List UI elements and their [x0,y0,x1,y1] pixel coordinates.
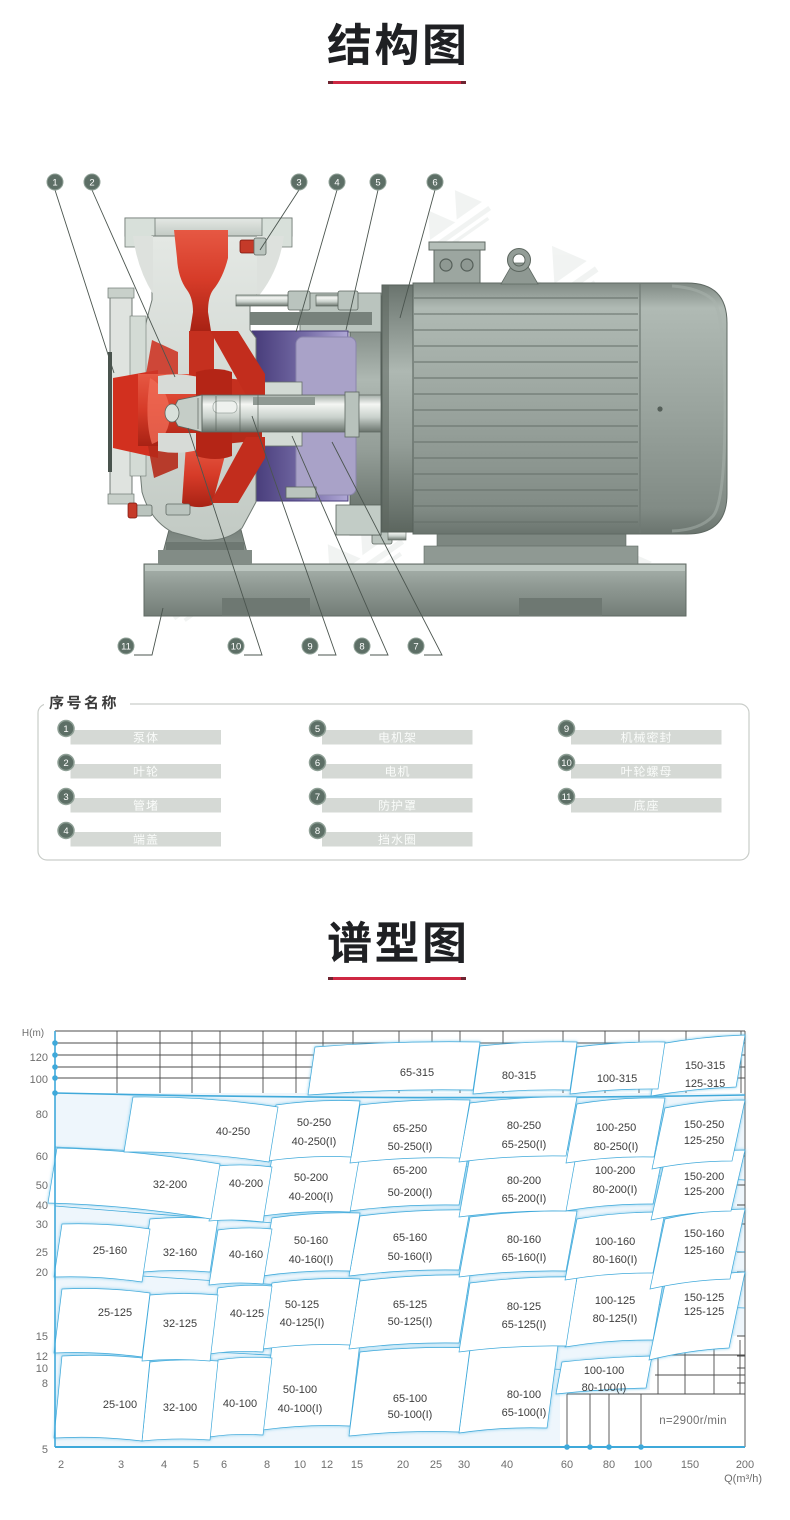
svg-text:65-160(I): 65-160(I) [502,1252,547,1264]
svg-text:40: 40 [501,1459,513,1471]
svg-text:80-250(I): 80-250(I) [594,1141,639,1153]
svg-text:40-200(I): 40-200(I) [289,1191,334,1203]
svg-text:80-100(I): 80-100(I) [582,1382,627,1394]
svg-text:60: 60 [36,1151,48,1163]
svg-text:50-250: 50-250 [297,1117,331,1129]
svg-text:n=2900r/min: n=2900r/min [659,1415,727,1427]
svg-text:30: 30 [36,1219,48,1231]
svg-text:4: 4 [334,178,339,189]
svg-text:150-315: 150-315 [685,1060,725,1072]
svg-text:4: 4 [161,1459,167,1471]
svg-text:40-100(I): 40-100(I) [278,1403,323,1415]
svg-text:80-125(I): 80-125(I) [593,1313,638,1325]
svg-text:150: 150 [681,1459,699,1471]
svg-text:60: 60 [561,1459,573,1471]
svg-text:25-160: 25-160 [93,1245,127,1257]
svg-text:50-160: 50-160 [294,1235,328,1247]
svg-text:32-160: 32-160 [163,1247,197,1259]
svg-text:125-315: 125-315 [685,1078,725,1090]
svg-text:100-100: 100-100 [584,1365,624,1377]
svg-text:7: 7 [413,642,418,653]
svg-text:80-200(I): 80-200(I) [593,1184,638,1196]
svg-text:32-200: 32-200 [153,1179,187,1191]
svg-text:25: 25 [36,1247,48,1259]
svg-text:65-315: 65-315 [400,1067,434,1079]
svg-text:50-160(I): 50-160(I) [388,1251,433,1263]
svg-text:25-100: 25-100 [103,1399,137,1411]
svg-text:H(m): H(m) [22,1028,44,1039]
svg-text:65-100(I): 65-100(I) [502,1407,547,1419]
svg-text:200: 200 [736,1459,754,1471]
svg-text:5: 5 [315,724,320,735]
svg-text:65-125(I): 65-125(I) [502,1319,547,1331]
svg-text:12: 12 [321,1459,333,1471]
svg-text:150-250: 150-250 [684,1119,724,1131]
svg-text:7: 7 [315,792,320,803]
svg-text:50-125: 50-125 [285,1299,319,1311]
svg-text:100-125: 100-125 [595,1295,635,1307]
svg-text:8: 8 [315,826,320,837]
svg-text:65-160: 65-160 [393,1232,427,1244]
svg-text:125-125: 125-125 [684,1306,724,1318]
svg-text:65-125: 65-125 [393,1299,427,1311]
svg-text:100-250: 100-250 [596,1122,636,1134]
svg-text:2: 2 [58,1459,64,1471]
svg-text:10: 10 [231,642,242,653]
svg-text:125-160: 125-160 [684,1245,724,1257]
svg-text:15: 15 [351,1459,363,1471]
svg-text:100: 100 [634,1459,652,1471]
svg-text:1: 1 [52,178,57,189]
svg-text:80-315: 80-315 [502,1070,536,1082]
svg-text:40-125: 40-125 [230,1308,264,1320]
svg-text:40-125(I): 40-125(I) [280,1317,325,1329]
svg-text:65-250(I): 65-250(I) [502,1139,547,1151]
svg-text:25: 25 [430,1459,442,1471]
svg-text:Q(m³/h): Q(m³/h) [724,1473,762,1485]
svg-text:80-100: 80-100 [507,1389,541,1401]
svg-text:50-250(I): 50-250(I) [388,1141,433,1153]
svg-text:40: 40 [36,1200,48,1212]
svg-text:15: 15 [36,1331,48,1343]
svg-text:40-200: 40-200 [229,1178,263,1190]
svg-text:80-200: 80-200 [507,1175,541,1187]
svg-text:100-315: 100-315 [597,1073,637,1085]
svg-text:120: 120 [30,1052,48,1064]
svg-text:11: 11 [121,642,131,653]
svg-text:80-250: 80-250 [507,1120,541,1132]
svg-text:80: 80 [36,1109,48,1121]
svg-text:65-250: 65-250 [393,1123,427,1135]
svg-text:5: 5 [193,1459,199,1471]
svg-text:65-200: 65-200 [393,1165,427,1177]
svg-text:65-200(I): 65-200(I) [502,1193,547,1205]
svg-text:80-125: 80-125 [507,1301,541,1313]
svg-text:65-100: 65-100 [393,1393,427,1405]
svg-text:8: 8 [359,642,364,653]
svg-text:50-100(I): 50-100(I) [388,1409,433,1421]
svg-text:6: 6 [315,758,320,769]
svg-text:40-250(I): 40-250(I) [292,1136,337,1148]
svg-text:25-125: 25-125 [98,1307,132,1319]
svg-text:30: 30 [458,1459,470,1471]
svg-text:9: 9 [564,724,569,735]
svg-text:125-200: 125-200 [684,1186,724,1198]
svg-text:50-100: 50-100 [283,1384,317,1396]
svg-text:100-200: 100-200 [595,1165,635,1177]
svg-text:40-160: 40-160 [229,1249,263,1261]
svg-text:8: 8 [42,1378,48,1390]
svg-text:11: 11 [562,792,572,803]
svg-text:150-200: 150-200 [684,1171,724,1183]
svg-text:150-125: 150-125 [684,1292,724,1304]
svg-text:32-100: 32-100 [163,1402,197,1414]
svg-text:10: 10 [561,758,572,769]
svg-text:32-125: 32-125 [163,1318,197,1330]
svg-text:8: 8 [264,1459,270,1471]
svg-text:50-200(I): 50-200(I) [388,1187,433,1199]
svg-text:9: 9 [307,642,312,653]
svg-text:50-200: 50-200 [294,1172,328,1184]
svg-text:20: 20 [36,1267,48,1279]
svg-text:10: 10 [36,1363,48,1375]
svg-text:40-250: 40-250 [216,1126,250,1138]
svg-text:3: 3 [118,1459,124,1471]
svg-text:3: 3 [296,178,301,189]
svg-text:5: 5 [42,1444,48,1456]
svg-text:2: 2 [63,758,68,769]
svg-text:100-160: 100-160 [595,1236,635,1248]
svg-text:5: 5 [375,178,380,189]
svg-text:50: 50 [36,1180,48,1192]
svg-text:4: 4 [63,826,68,837]
svg-text:80: 80 [603,1459,615,1471]
svg-text:40-100: 40-100 [223,1398,257,1410]
svg-text:2: 2 [89,178,94,189]
svg-text:3: 3 [63,792,68,803]
svg-text:80-160: 80-160 [507,1234,541,1246]
svg-text:80-160(I): 80-160(I) [593,1254,638,1266]
svg-text:150-160: 150-160 [684,1228,724,1240]
svg-text:50-125(I): 50-125(I) [388,1316,433,1328]
svg-text:125-250: 125-250 [684,1135,724,1147]
svg-text:12: 12 [36,1351,48,1363]
svg-text:20: 20 [397,1459,409,1471]
svg-text:10: 10 [294,1459,306,1471]
svg-text:100: 100 [30,1074,48,1086]
svg-text:6: 6 [221,1459,227,1471]
svg-text:40-160(I): 40-160(I) [289,1254,334,1266]
svg-text:1: 1 [63,724,68,735]
svg-text:6: 6 [432,178,437,189]
